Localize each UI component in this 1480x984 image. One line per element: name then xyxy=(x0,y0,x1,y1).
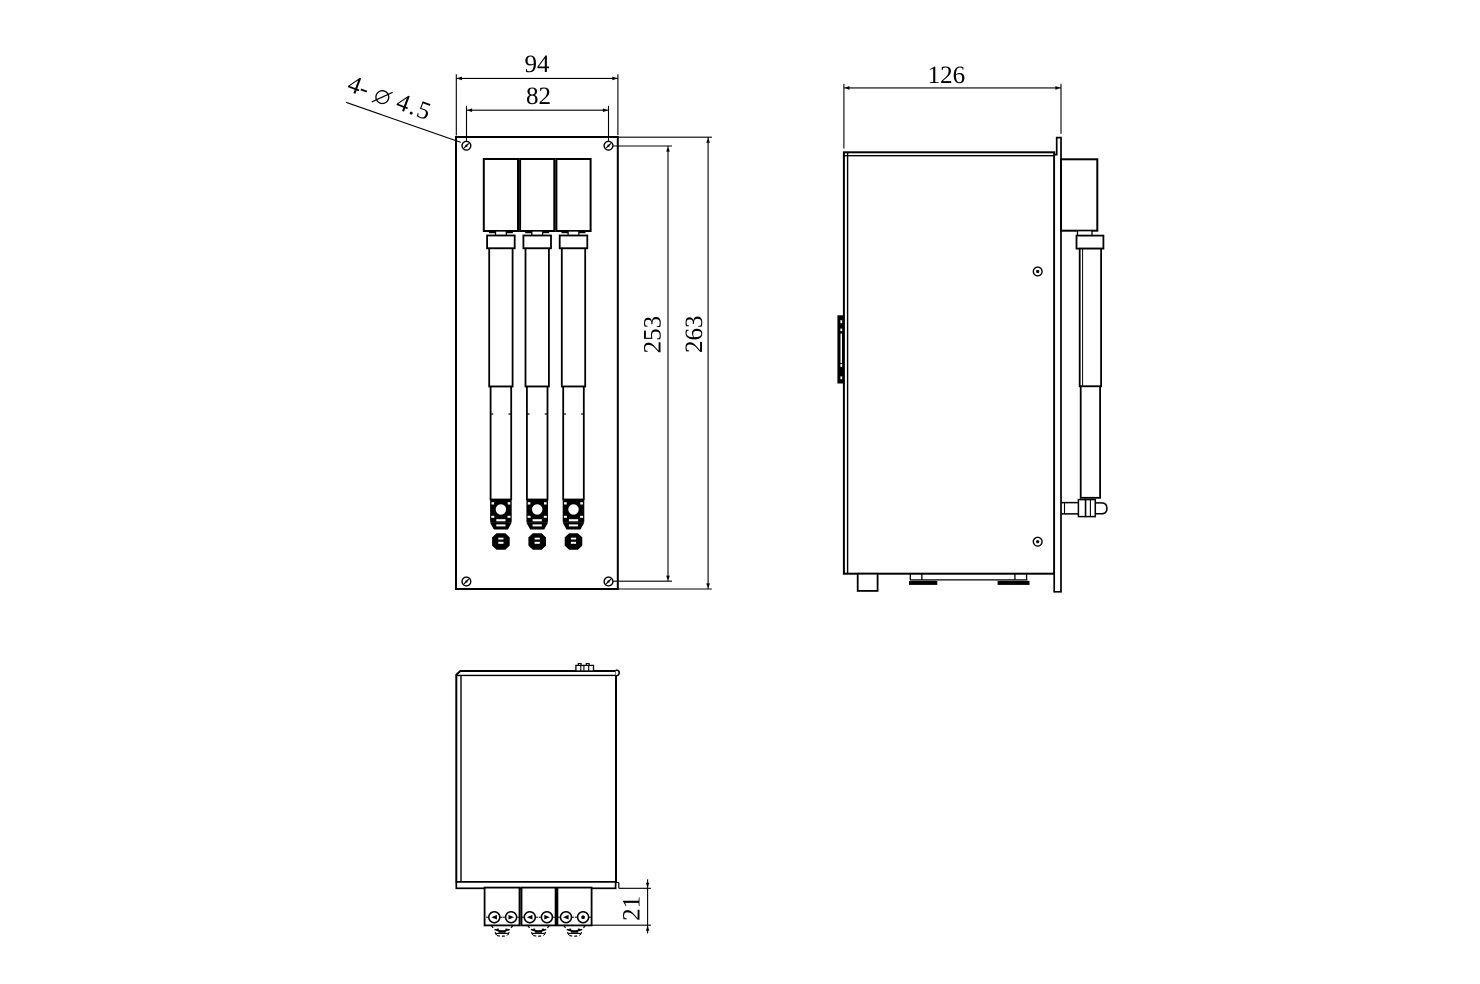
svg-text:126: 126 xyxy=(928,62,966,89)
svg-text:253: 253 xyxy=(640,316,667,354)
svg-text:263: 263 xyxy=(681,315,708,353)
svg-text:82: 82 xyxy=(526,83,551,110)
svg-text:21: 21 xyxy=(619,896,646,921)
svg-text:94: 94 xyxy=(525,51,551,78)
